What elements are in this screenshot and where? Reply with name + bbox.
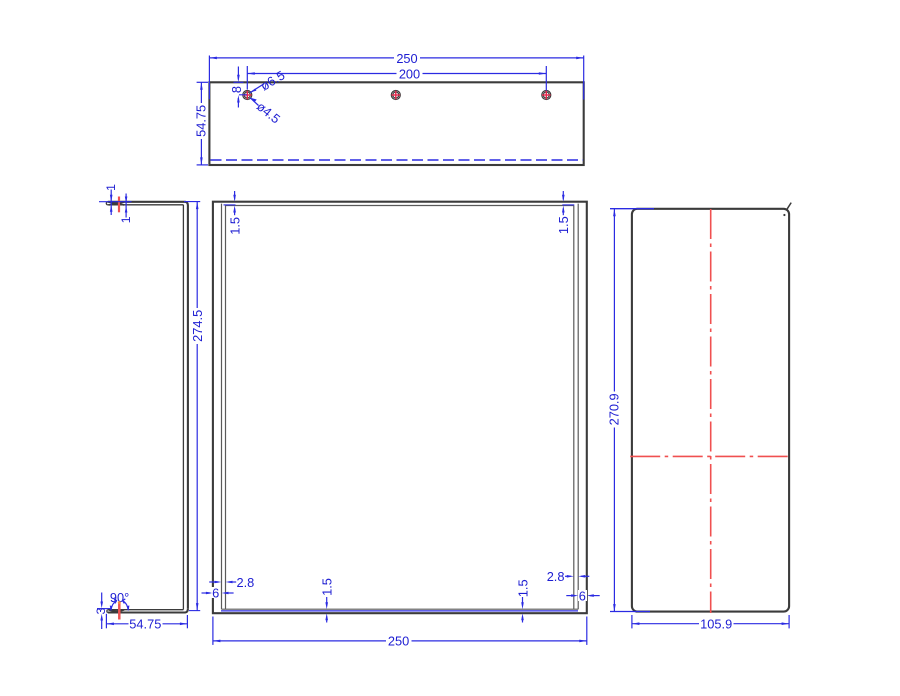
- svg-text:1.5: 1.5: [227, 217, 242, 235]
- svg-text:250: 250: [388, 634, 409, 649]
- svg-text:1.5: 1.5: [515, 579, 530, 597]
- svg-text:1: 1: [104, 184, 118, 191]
- svg-text:54.75: 54.75: [129, 617, 161, 632]
- svg-text:2.8: 2.8: [547, 569, 565, 584]
- svg-text:1.5: 1.5: [320, 578, 335, 596]
- svg-text:6: 6: [579, 588, 586, 603]
- svg-text:105.9: 105.9: [700, 617, 732, 632]
- svg-text:1: 1: [119, 216, 133, 223]
- svg-text:54.75: 54.75: [193, 105, 208, 137]
- svg-text:8: 8: [229, 86, 244, 93]
- svg-text:270.9: 270.9: [607, 393, 622, 425]
- svg-text:1.5: 1.5: [556, 216, 571, 234]
- svg-text:6: 6: [212, 586, 219, 601]
- svg-text:3: 3: [94, 608, 108, 615]
- svg-text:2.8: 2.8: [237, 575, 255, 590]
- svg-text:274.5: 274.5: [190, 310, 205, 342]
- svg-text:200: 200: [399, 67, 420, 82]
- svg-text:250: 250: [396, 51, 417, 66]
